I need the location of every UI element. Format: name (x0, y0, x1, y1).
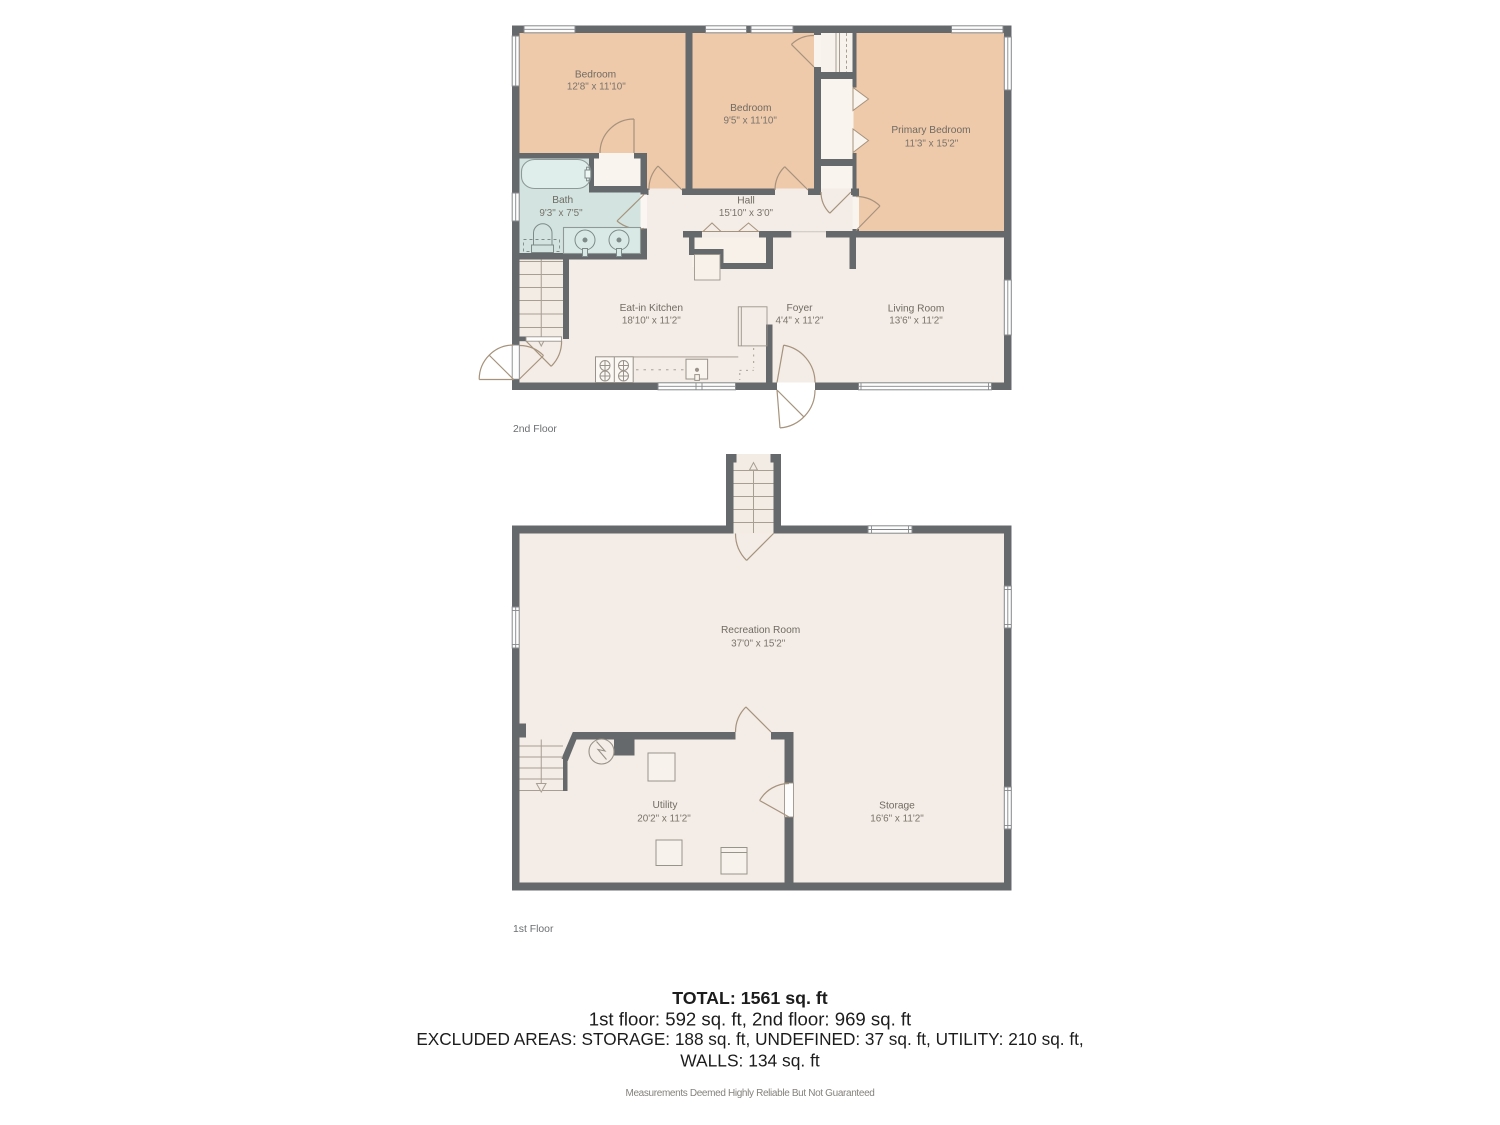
svg-text:WALLS: 134 sq. ft: WALLS: 134 sq. ft (680, 1050, 820, 1070)
svg-text:4'4" x 11'2": 4'4" x 11'2" (776, 316, 824, 327)
svg-text:Eat-in Kitchen: Eat-in Kitchen (620, 303, 683, 314)
svg-text:15'10" x 3'0": 15'10" x 3'0" (719, 208, 774, 219)
svg-text:Bath: Bath (552, 195, 573, 206)
svg-text:2nd Floor: 2nd Floor (513, 424, 557, 435)
svg-text:Bedroom: Bedroom (730, 103, 771, 114)
svg-text:Hall: Hall (737, 196, 755, 207)
svg-text:13'6" x 11'2": 13'6" x 11'2" (889, 316, 943, 327)
svg-text:20'2" x 11'2": 20'2" x 11'2" (637, 814, 691, 825)
svg-text:9'5" x 11'10": 9'5" x 11'10" (723, 116, 777, 127)
svg-text:Storage: Storage (879, 801, 915, 812)
svg-text:EXCLUDED AREAS: STORAGE: 188 s: EXCLUDED AREAS: STORAGE: 188 sq. ft, UND… (416, 1029, 1083, 1049)
svg-text:1st floor: 592 sq. ft, 2nd flo: 1st floor: 592 sq. ft, 2nd floor: 969 sq… (589, 1009, 912, 1030)
svg-text:Primary Bedroom: Primary Bedroom (891, 125, 970, 136)
svg-text:12'8" x 11'10": 12'8" x 11'10" (567, 82, 626, 93)
svg-text:Bedroom: Bedroom (575, 70, 616, 81)
svg-text:11'3" x 15'2": 11'3" x 15'2" (905, 139, 959, 150)
svg-text:Foyer: Foyer (786, 303, 813, 314)
svg-text:18'10" x 11'2": 18'10" x 11'2" (622, 316, 681, 327)
svg-text:Living Room: Living Room (888, 304, 945, 315)
svg-text:37'0" x 15'2": 37'0" x 15'2" (731, 639, 786, 650)
svg-text:Recreation Room: Recreation Room (721, 625, 800, 636)
svg-text:Measurements Deemed Highly Rel: Measurements Deemed Highly Reliable But … (625, 1088, 874, 1099)
svg-text:16'6" x 11'2": 16'6" x 11'2" (870, 814, 924, 825)
svg-text:Utility: Utility (653, 800, 679, 811)
svg-text:TOTAL: 1561 sq. ft: TOTAL: 1561 sq. ft (672, 988, 828, 1008)
svg-text:1st Floor: 1st Floor (513, 924, 554, 935)
svg-text:9'3" x 7'5": 9'3" x 7'5" (539, 208, 583, 219)
